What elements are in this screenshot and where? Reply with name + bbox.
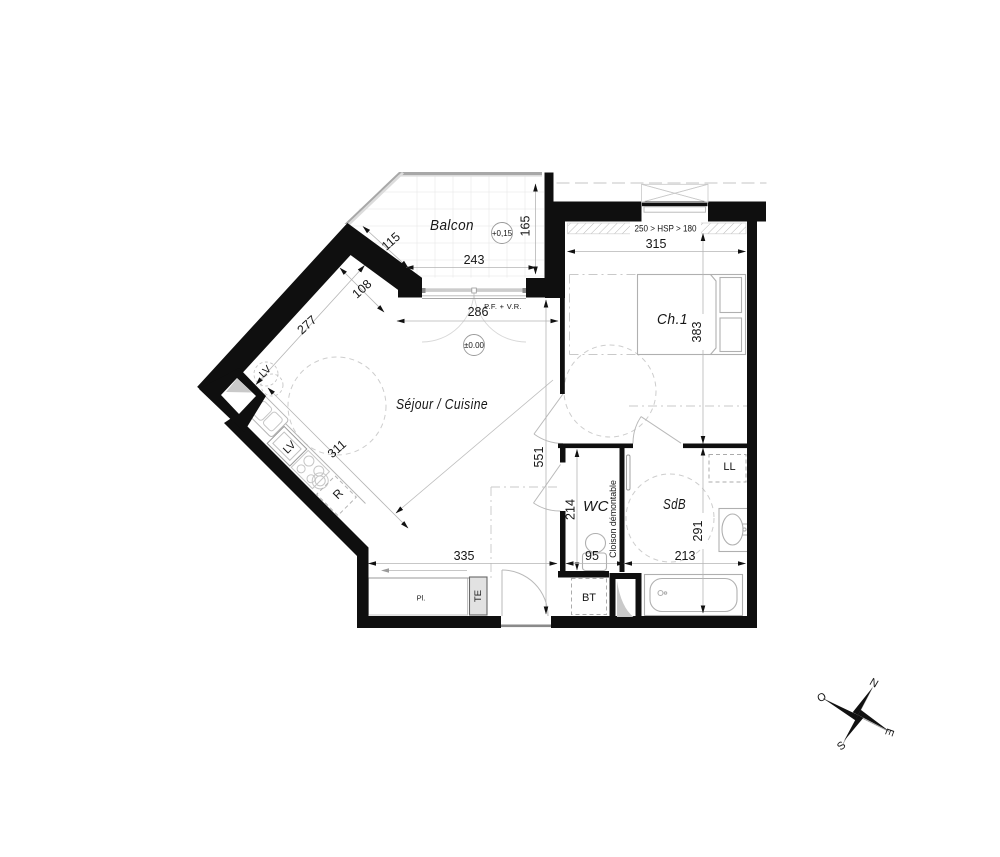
svg-text:P.F. + V.R.: P.F. + V.R. xyxy=(484,302,522,311)
svg-text:383: 383 xyxy=(690,322,704,343)
svg-text:214: 214 xyxy=(564,499,578,520)
svg-text:165: 165 xyxy=(519,216,533,237)
svg-text:Cloison démontable: Cloison démontable xyxy=(608,480,618,558)
svg-text:LL: LL xyxy=(723,461,735,473)
svg-text:Ch.1: Ch.1 xyxy=(657,311,688,328)
svg-text:243: 243 xyxy=(464,253,485,267)
svg-text:Pl.: Pl. xyxy=(417,594,426,603)
svg-text:+0,15: +0,15 xyxy=(492,229,513,238)
svg-text:Séjour / Cuisine: Séjour / Cuisine xyxy=(396,396,488,413)
svg-text:Balcon: Balcon xyxy=(430,217,474,234)
svg-text:250 > HSP > 180: 250 > HSP > 180 xyxy=(635,224,697,234)
svg-text:SdB: SdB xyxy=(663,496,686,513)
svg-text:335: 335 xyxy=(454,549,475,563)
svg-text:TE: TE xyxy=(473,590,484,602)
svg-text:213: 213 xyxy=(675,549,696,563)
svg-text:315: 315 xyxy=(646,237,667,251)
svg-text:±0.00: ±0.00 xyxy=(464,341,485,350)
svg-text:BT: BT xyxy=(582,592,596,604)
svg-text:551: 551 xyxy=(532,447,546,468)
svg-text:95: 95 xyxy=(585,549,599,563)
svg-text:WC: WC xyxy=(583,498,609,515)
svg-text:291: 291 xyxy=(691,521,705,542)
